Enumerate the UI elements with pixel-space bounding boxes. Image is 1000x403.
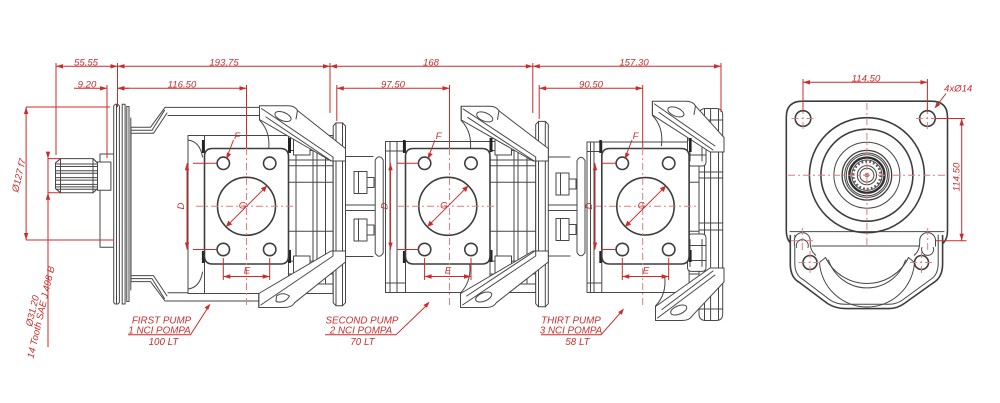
svg-text:4xØ14: 4xØ14 xyxy=(944,84,972,95)
svg-text:70 LT: 70 LT xyxy=(350,337,375,348)
svg-text:D: D xyxy=(380,202,391,209)
svg-text:55.55: 55.55 xyxy=(74,57,99,68)
svg-text:D: D xyxy=(176,202,187,209)
svg-text:E: E xyxy=(643,266,650,277)
svg-text:90.50: 90.50 xyxy=(579,79,604,90)
svg-text:G: G xyxy=(440,201,448,212)
svg-text:E: E xyxy=(445,266,452,277)
svg-text:193.75: 193.75 xyxy=(209,57,239,68)
svg-text:E: E xyxy=(244,266,251,277)
svg-text:58 LT: 58 LT xyxy=(565,337,590,348)
svg-text:168: 168 xyxy=(423,57,440,68)
svg-text:D: D xyxy=(584,202,595,209)
svg-text:100 LT: 100 LT xyxy=(149,337,180,348)
svg-text:114.50: 114.50 xyxy=(852,73,881,84)
svg-text:114.50: 114.50 xyxy=(952,162,963,191)
svg-text:97.50: 97.50 xyxy=(381,79,406,90)
svg-text:116.50: 116.50 xyxy=(168,79,197,90)
svg-text:157.30: 157.30 xyxy=(619,57,649,68)
svg-text:G: G xyxy=(239,201,247,212)
svg-text:G: G xyxy=(638,201,646,212)
svg-text:9.20: 9.20 xyxy=(78,79,97,90)
